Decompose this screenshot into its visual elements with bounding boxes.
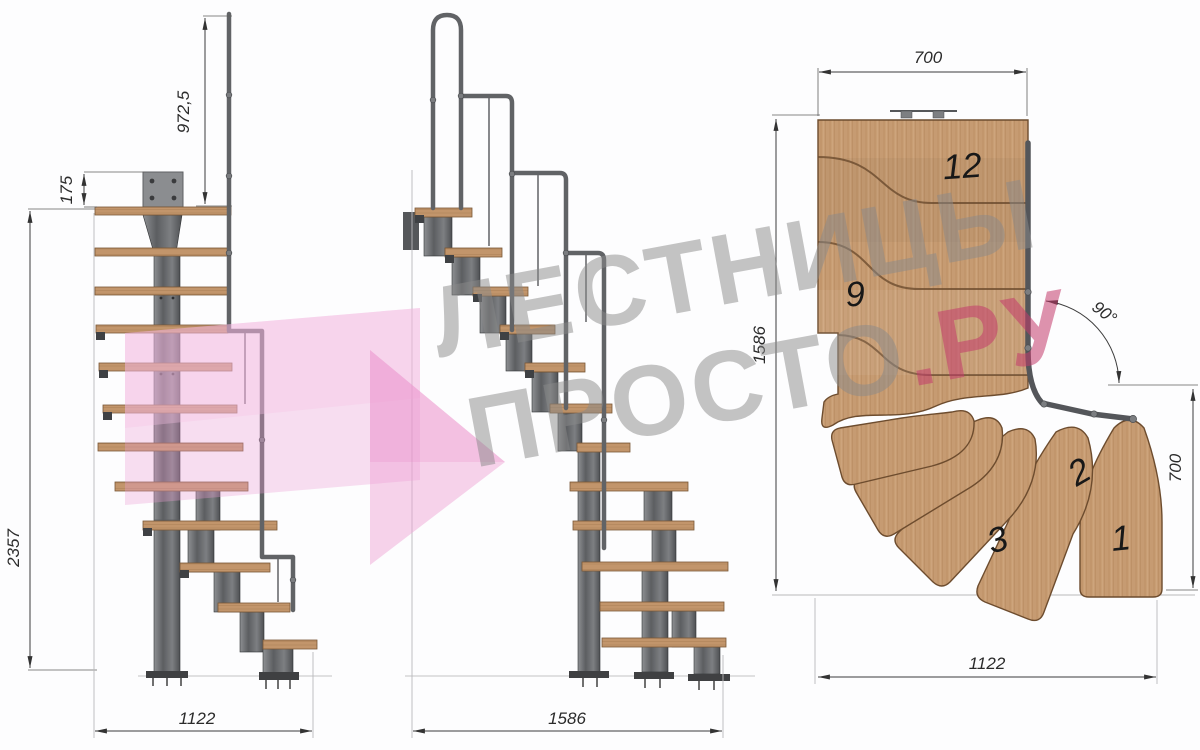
- dim-label-total-height: 2357: [4, 529, 23, 568]
- plan-tread-1: [1080, 420, 1162, 597]
- drawing-svg: 972,5 175 2357 1122: [0, 0, 1200, 750]
- plan-fan-treads: [832, 411, 1162, 621]
- step-number-1: 1: [1109, 518, 1132, 559]
- dim-label-plan-bottom-width: 1122: [969, 654, 1006, 673]
- dim-label-bracket-offset: 175: [57, 175, 76, 204]
- wall-bracket-plate: [143, 172, 183, 207]
- plan-wall-bracket: [890, 111, 957, 118]
- dim-label-base-width: 1122: [179, 709, 216, 728]
- dim-label-plan-top-width: 700: [914, 48, 943, 67]
- dim-label-base-length: 1586: [548, 709, 586, 728]
- left-view-handrail: [226, 14, 296, 610]
- lower-flight-modules: [188, 490, 299, 689]
- staircase-technical-drawing: 972,5 175 2357 1122: [0, 0, 1200, 750]
- dim-label-plan-right-depth: 700: [1166, 453, 1185, 482]
- dim-label-rail-height: 972,5: [174, 90, 193, 133]
